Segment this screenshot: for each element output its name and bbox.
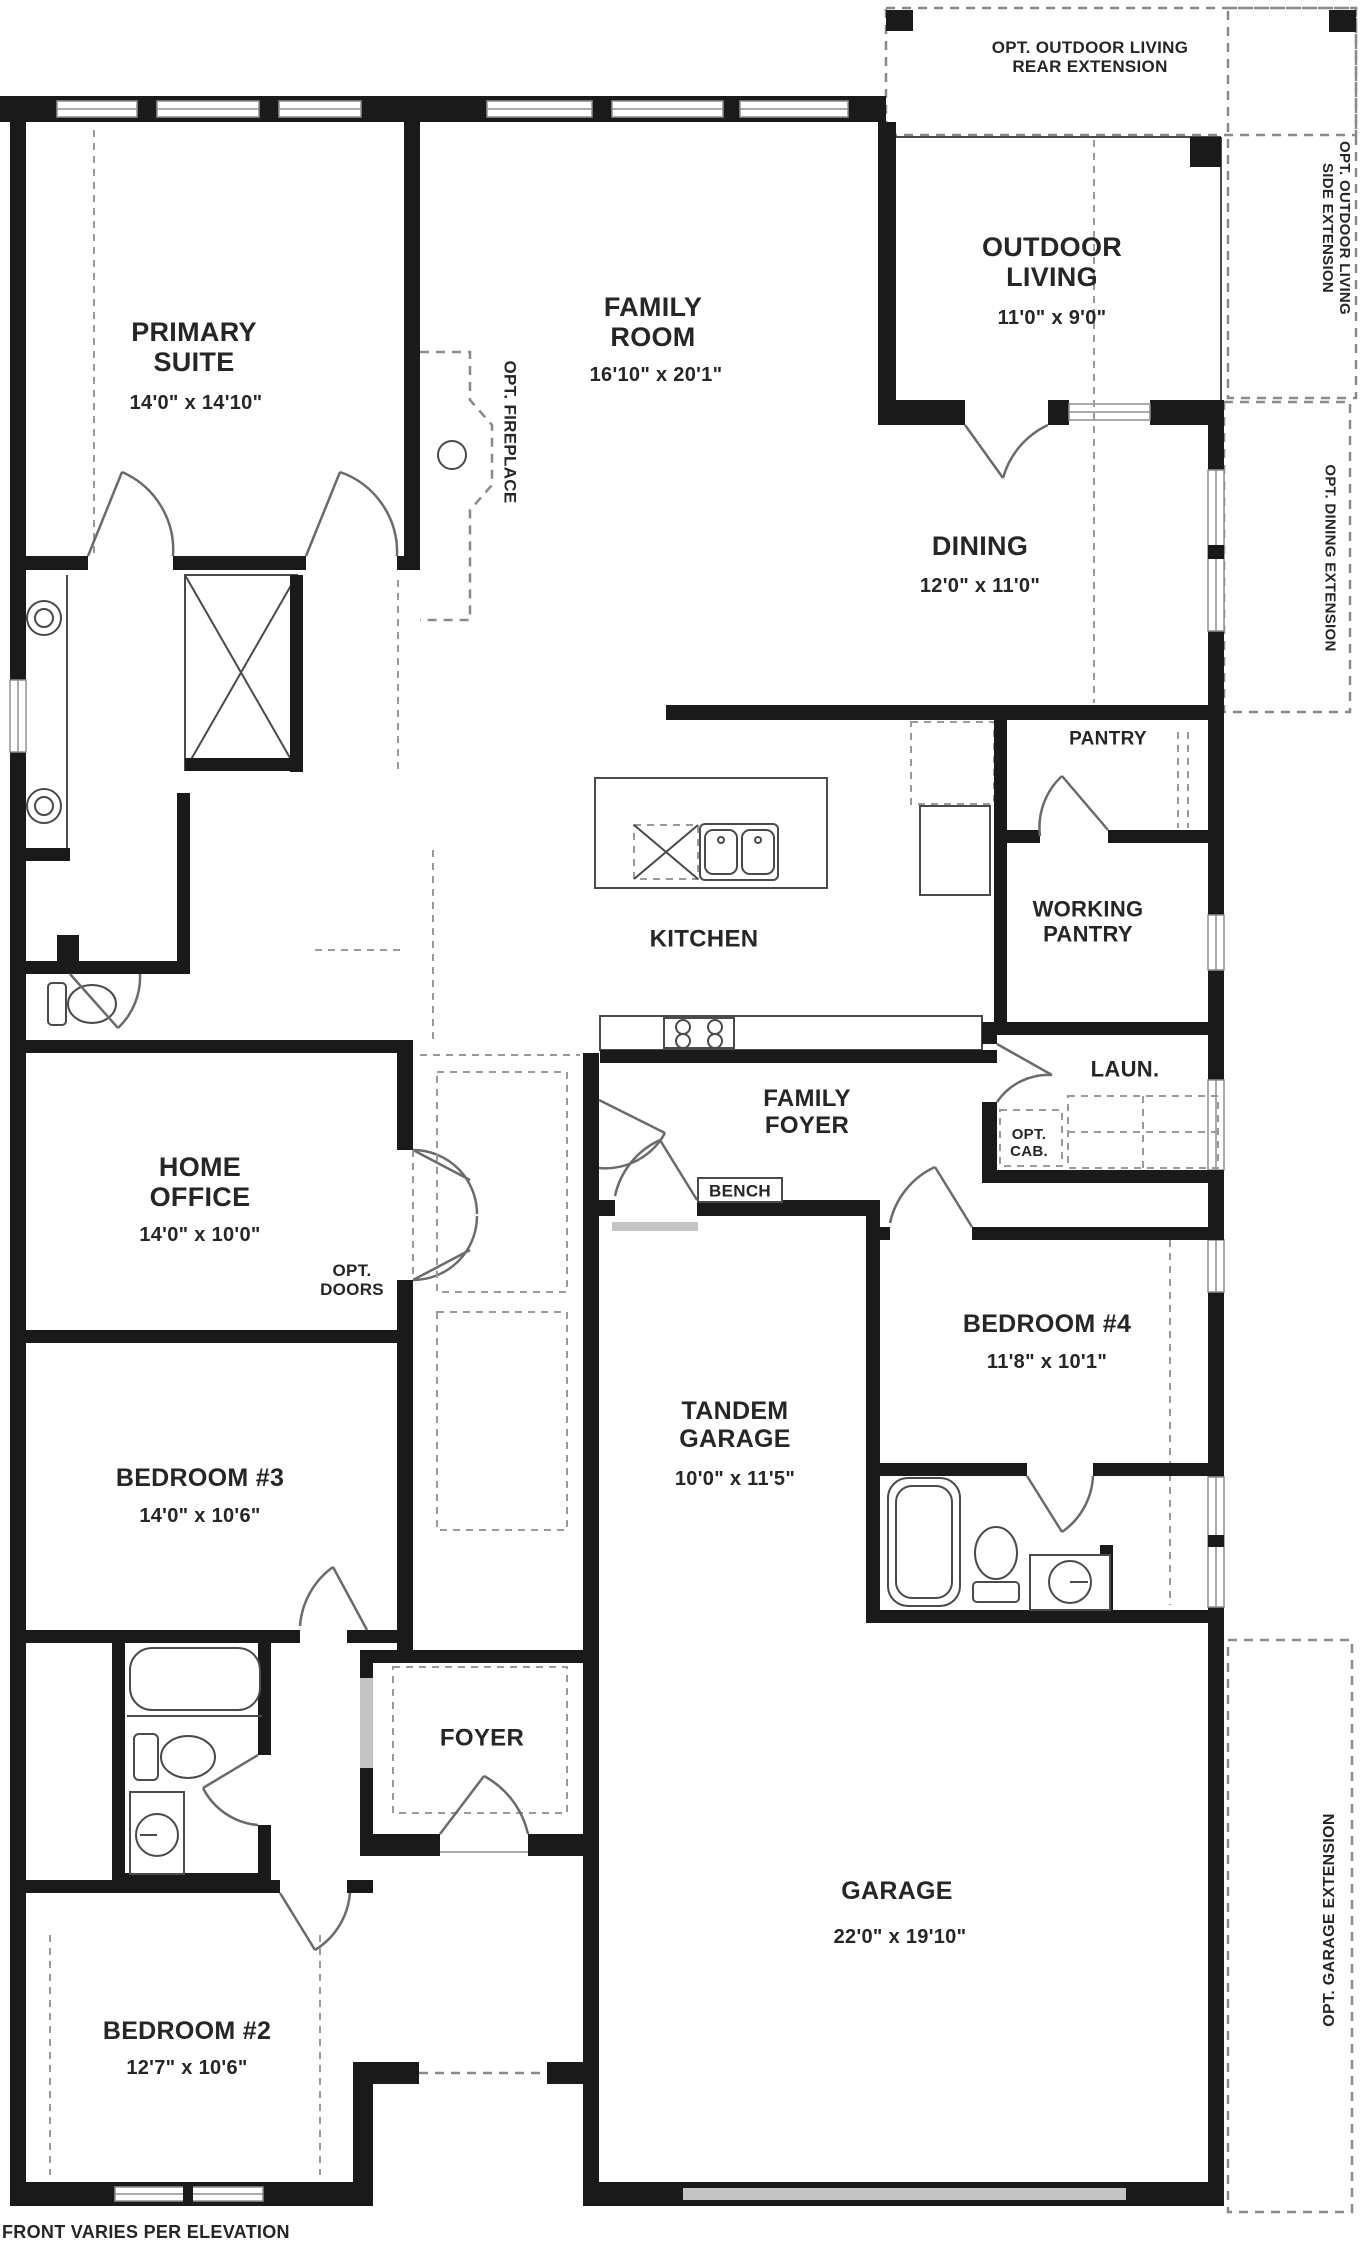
floor-plan: OPT. OUTDOOR LIVING REAR EXTENSION OPT. …: [0, 0, 1361, 2250]
label-bedroom4: BEDROOM #4: [963, 1310, 1131, 1338]
front-elevation-note: FRONT VARIES PER ELEVATION: [2, 2222, 290, 2242]
label-outdoor-living: OUTDOOR LIVING: [982, 232, 1122, 292]
dims-bedroom4: 11'8" x 10'1": [987, 1351, 1107, 1373]
label-opt-cab: OPT. CAB.: [1010, 1127, 1048, 1161]
patio-door-swing: [965, 425, 1048, 478]
bedroom4-structure: [880, 1240, 1224, 1623]
home-office-structure: [10, 1040, 580, 1650]
dims-bedroom3: 14'0" x 10'6": [139, 1505, 260, 1527]
label-opt-garage-ext: OPT. GARAGE EXTENSION: [1321, 1813, 1339, 2026]
label-garage: GARAGE: [841, 1877, 953, 1905]
label-dining: DINING: [932, 531, 1028, 561]
label-home-office: HOME OFFICE: [150, 1152, 251, 1212]
label-family-room: FAMILY ROOM: [604, 292, 702, 352]
label-opt-outdoor-rear: OPT. OUTDOOR LIVING REAR EXTENSION: [992, 38, 1189, 76]
label-working-pantry: WORKING PANTRY: [1033, 897, 1144, 946]
fireplace-structure: [420, 352, 492, 620]
label-opt-doors: OPT. DOORS: [320, 1261, 384, 1299]
bedroom3-structure: [10, 1567, 597, 2175]
kitchen-structure: [433, 705, 1224, 1063]
label-opt-fireplace: OPT. FIREPLACE: [500, 360, 519, 503]
label-bedroom2: BEDROOM #2: [103, 2017, 271, 2045]
dims-dining: 12'0" x 11'0": [920, 575, 1040, 597]
primary-suite-structure: [10, 122, 420, 1028]
garage-door: [683, 2188, 1126, 2200]
dims-family-room: 16'10" x 20'1": [590, 364, 723, 386]
label-opt-dining-ext: OPT. DINING EXTENSION: [1321, 464, 1338, 651]
optional-extension-outlines: [886, 8, 1356, 2212]
label-kitchen: KITCHEN: [650, 927, 759, 954]
dims-outdoor-living: 11'0" x 9'0": [998, 307, 1107, 329]
label-bench: BENCH: [709, 1181, 771, 1200]
label-family-foyer: FAMILY FOYER: [763, 1086, 851, 1140]
label-laundry: LAUN.: [1091, 1058, 1160, 1083]
dims-garage: 22'0" x 19'10": [834, 1926, 967, 1948]
dims-tandem-garage: 10'0" x 11'5": [675, 1468, 795, 1490]
outdoor-living-structure: [878, 122, 1224, 703]
dims-home-office: 14'0" x 10'0": [139, 1224, 260, 1246]
label-opt-outdoor-side: OPT. OUTDOOR LIVING SIDE EXTENSION: [1318, 141, 1352, 315]
label-pantry: PANTRY: [1069, 728, 1147, 749]
label-foyer: FOYER: [440, 1726, 524, 1753]
dims-primary-suite: 14'0" x 14'10": [130, 392, 263, 414]
label-bedroom3: BEDROOM #3: [116, 1464, 284, 1492]
label-primary-suite: PRIMARY SUITE: [131, 317, 257, 377]
label-tandem-garage: TANDEM GARAGE: [679, 1397, 791, 1453]
dims-bedroom2: 12'7" x 10'6": [126, 2057, 247, 2079]
